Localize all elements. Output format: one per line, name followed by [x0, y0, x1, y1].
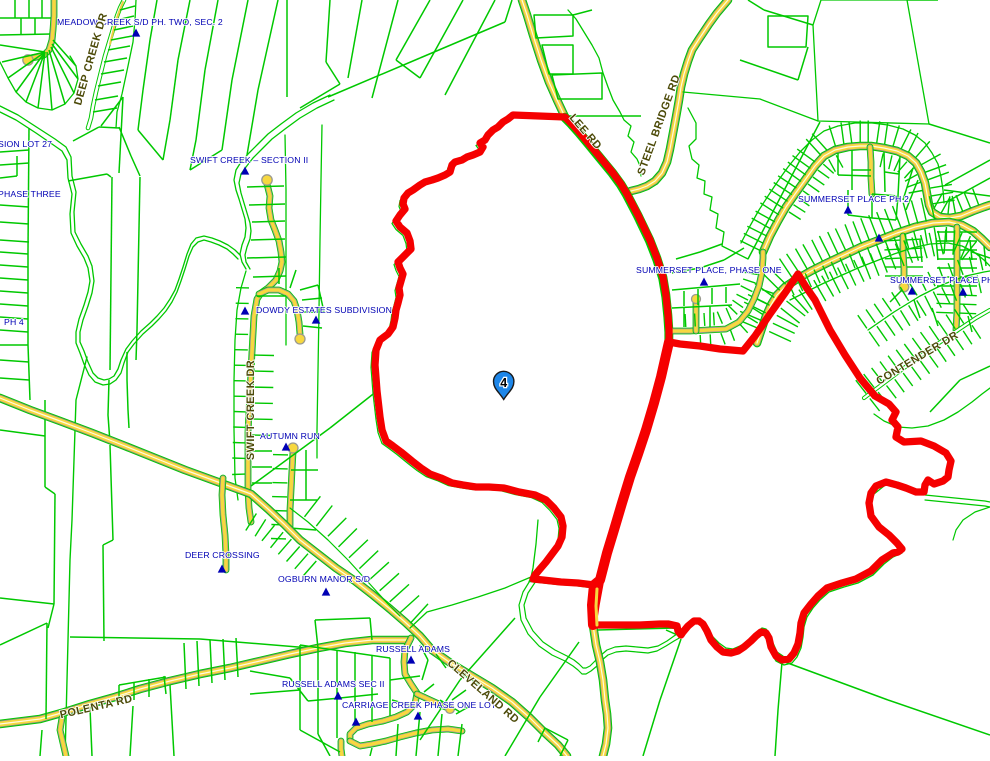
svg-text:SUMMERSET PLACE, PHASE ONE: SUMMERSET PLACE, PHASE ONE	[636, 265, 782, 275]
svg-text:RUSSELL ADAMS SEC II: RUSSELL ADAMS SEC II	[282, 679, 385, 689]
svg-text:SION LOT 27: SION LOT 27	[0, 139, 52, 149]
svg-text:AUTUMN RUN: AUTUMN RUN	[260, 431, 320, 441]
svg-text:CARRIAGE CREEK PHASE ONE LOT: CARRIAGE CREEK PHASE ONE LOT	[342, 700, 497, 710]
svg-text:SWIFT CREEK DR: SWIFT CREEK DR	[245, 360, 257, 460]
svg-text:DOWDY ESTATES SUBDIVISION: DOWDY ESTATES SUBDIVISION	[256, 305, 392, 315]
svg-text:RUSSELL ADAMS: RUSSELL ADAMS	[376, 644, 450, 654]
svg-text:MEADOW CREEK S/D PH. TWO, SEC.: MEADOW CREEK S/D PH. TWO, SEC. 2	[57, 17, 223, 27]
svg-text:SUMMERSET PLACE PH: SUMMERSET PLACE PH	[890, 275, 990, 285]
svg-text:PHASE THREE: PHASE THREE	[0, 189, 61, 199]
svg-text:PH 4: PH 4	[4, 317, 24, 327]
svg-text:4: 4	[500, 376, 507, 390]
svg-text:OGBURN MANOR S/D: OGBURN MANOR S/D	[278, 574, 370, 584]
svg-text:DEER CROSSING: DEER CROSSING	[185, 550, 260, 560]
svg-text:SWIFT CREEK – SECTION II: SWIFT CREEK – SECTION II	[190, 155, 308, 165]
svg-text:SUMMERSET PLACE PH 2: SUMMERSET PLACE PH 2	[798, 194, 909, 204]
